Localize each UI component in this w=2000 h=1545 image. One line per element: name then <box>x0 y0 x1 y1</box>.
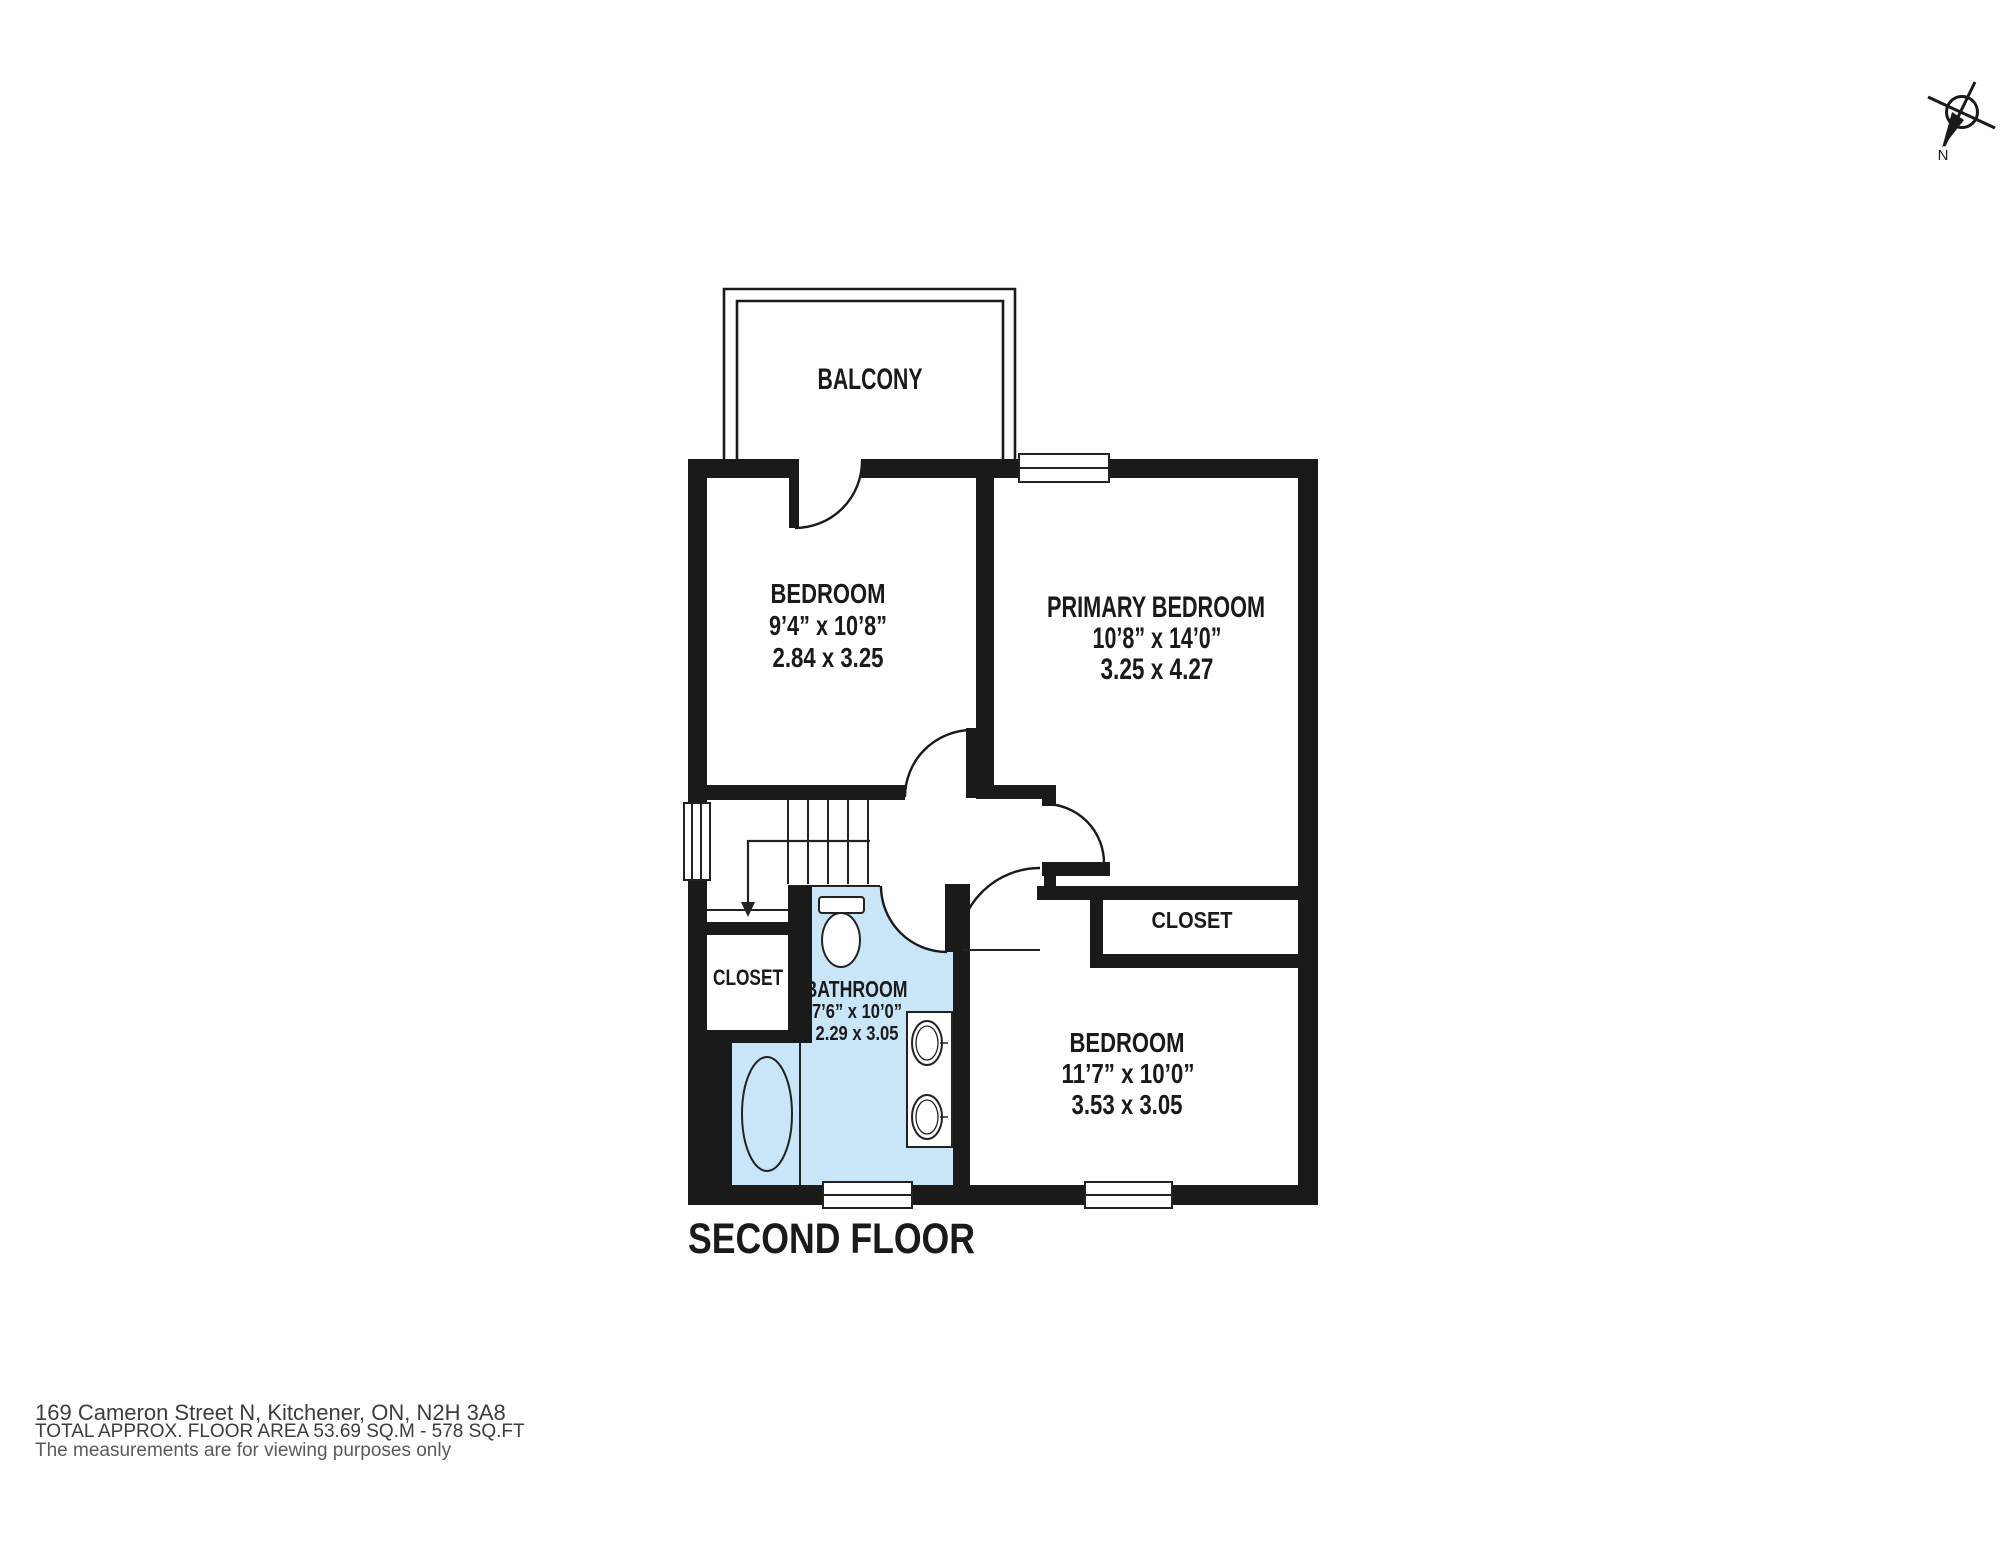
wall-bedroom-divider <box>976 459 994 786</box>
bedroom-top-label: BEDROOM <box>771 578 886 609</box>
bathroom-dim-metric: 2.29 x 3.05 <box>816 1023 899 1045</box>
floor-title: SECOND FLOOR <box>688 1215 975 1263</box>
bathroom-dim-imperial: 7’6” x 10’0” <box>812 1001 902 1023</box>
toilet-bowl <box>822 913 860 967</box>
bedroom-top-dim-imperial: 9’4” x 10’8” <box>769 610 887 641</box>
footer-area: TOTAL APPROX. FLOOR AREA 53.69 SQ.M - 57… <box>35 1421 525 1442</box>
door-arc-bedroom-bottom <box>958 868 1040 950</box>
wall-bottom-mid <box>912 1185 1085 1205</box>
wall-hall-top-right <box>976 785 1056 799</box>
compass-needle-head <box>1942 112 1964 148</box>
door-leaf-balcony <box>789 459 799 528</box>
wall-right <box>1298 459 1318 1205</box>
primary-closet-label: CLOSET <box>1152 907 1233 933</box>
wall-closet-bottom <box>1090 954 1298 968</box>
wall-hallcloset-bathroom <box>788 886 812 1043</box>
bedroom-bottom-label: BEDROOM <box>1070 1027 1185 1058</box>
door-arc-balcony <box>795 461 862 528</box>
wall-left-upper <box>688 459 707 805</box>
primary-bedroom-label: PRIMARY BEDROOM <box>1047 591 1265 624</box>
door-arc-primary-bedroom <box>1045 804 1104 863</box>
sink-vanity <box>907 1012 952 1147</box>
wall-top-right <box>1108 459 1318 478</box>
toilet-tank <box>819 897 864 913</box>
wall-hallcloset-bottom <box>705 1030 800 1043</box>
floor-plan-page: N BALCONY BEDROOM 9’4” x 10’8” 2.84 x 3.… <box>0 0 2000 1545</box>
wall-closet-top <box>1037 886 1298 900</box>
bedroom-bottom-dim-imperial: 11’7” x 10’0” <box>1062 1058 1195 1089</box>
wall-bedroom-bottom <box>688 785 905 800</box>
compass-north-label: N <box>1938 147 1949 164</box>
bedroom-top-dim-metric: 2.84 x 3.25 <box>773 642 884 673</box>
door-arcs <box>795 461 1104 952</box>
bedroom-bottom-dim-metric: 3.53 x 3.05 <box>1072 1089 1183 1120</box>
wall-left-lower <box>688 878 707 1043</box>
wall-hallcloset-top <box>705 922 790 935</box>
bathroom-label: BATHROOM <box>805 976 908 1002</box>
floor-plan: N BALCONY BEDROOM 9’4” x 10’8” 2.84 x 3.… <box>0 0 2000 1545</box>
hall-closet-label: CLOSET <box>713 965 783 990</box>
balcony-label: BALCONY <box>818 363 923 396</box>
footer: 169 Cameron Street N, Kitchener, ON, N2H… <box>35 1400 525 1461</box>
door-leaf-primary <box>1042 862 1110 876</box>
door-leaf-bathroom <box>945 886 955 952</box>
door-arc-bedroom-top <box>905 730 972 797</box>
wall-top-mid <box>861 459 1020 478</box>
footer-disclaimer: The measurements are for viewing purpose… <box>35 1440 452 1461</box>
wall-bottom-right <box>1172 1185 1318 1205</box>
window-left-wall <box>684 803 710 880</box>
primary-bedroom-dim-imperial: 10’8” x 14’0” <box>1093 622 1222 655</box>
primary-bedroom-dim-metric: 3.25 x 4.27 <box>1101 653 1214 686</box>
compass: N <box>1928 82 1995 164</box>
door-leaf-bedroom-top <box>966 728 976 798</box>
wall-left-block <box>688 1043 732 1205</box>
